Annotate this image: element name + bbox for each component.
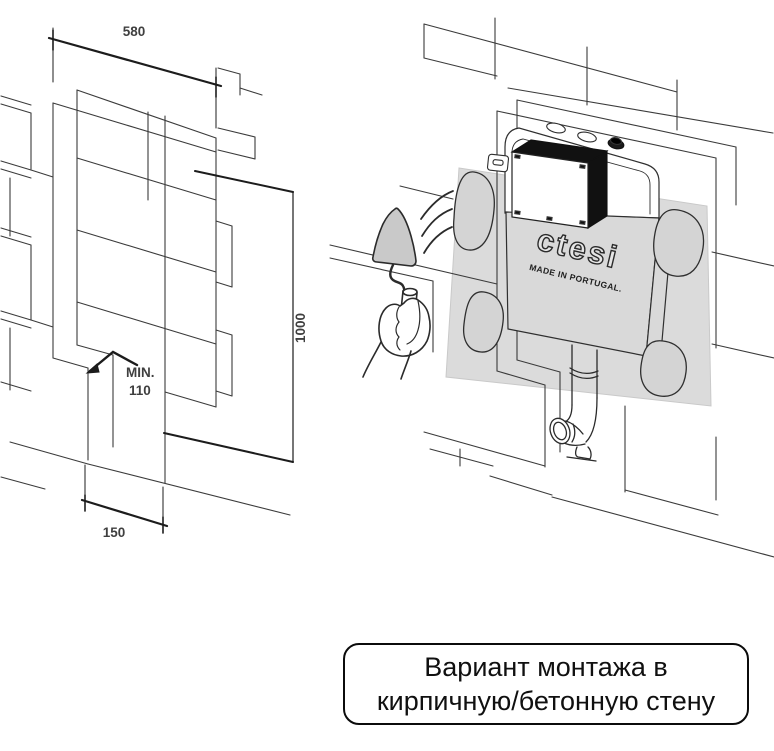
cistern-installation-illustration [330, 18, 774, 557]
fixing-bracket [487, 154, 509, 172]
fist [379, 298, 430, 356]
installation-instruction-page: 580 1000 MIN. 110 150 [0, 0, 774, 751]
throw-motion-lines [421, 191, 453, 253]
caption-line-1: Вариант монтажа в [424, 650, 667, 684]
mortar-blob [641, 341, 687, 397]
trowel-neck [390, 265, 404, 294]
dimension-580 [49, 28, 221, 128]
mortar-blob [464, 292, 504, 352]
caption-line-2: кирпичную/бетонную стену [377, 684, 715, 718]
wall-niche-dimension-drawing [1, 28, 293, 533]
dim-channel-label: 150 [103, 525, 126, 540]
dim-height-label: 1000 [293, 313, 308, 343]
dim-depth-label-min: MIN. [126, 365, 155, 380]
dim-width-label: 580 [123, 24, 146, 39]
wrist [363, 342, 381, 377]
dim-depth-label-110: 110 [129, 383, 151, 398]
mortar-blob [654, 210, 704, 277]
caption-box: Вариант монтажа в кирпичную/бетонную сте… [343, 643, 749, 725]
dimension-1000 [164, 171, 293, 462]
hand-with-trowel [363, 208, 430, 379]
dimension-150 [82, 465, 167, 533]
inlet-knob [607, 137, 625, 151]
trowel-blade [373, 208, 416, 266]
outlet-opening [547, 416, 574, 447]
inspection-box [512, 140, 607, 228]
installation-diagrams: 580 1000 MIN. 110 150 [0, 0, 774, 580]
top-hole [546, 121, 567, 134]
